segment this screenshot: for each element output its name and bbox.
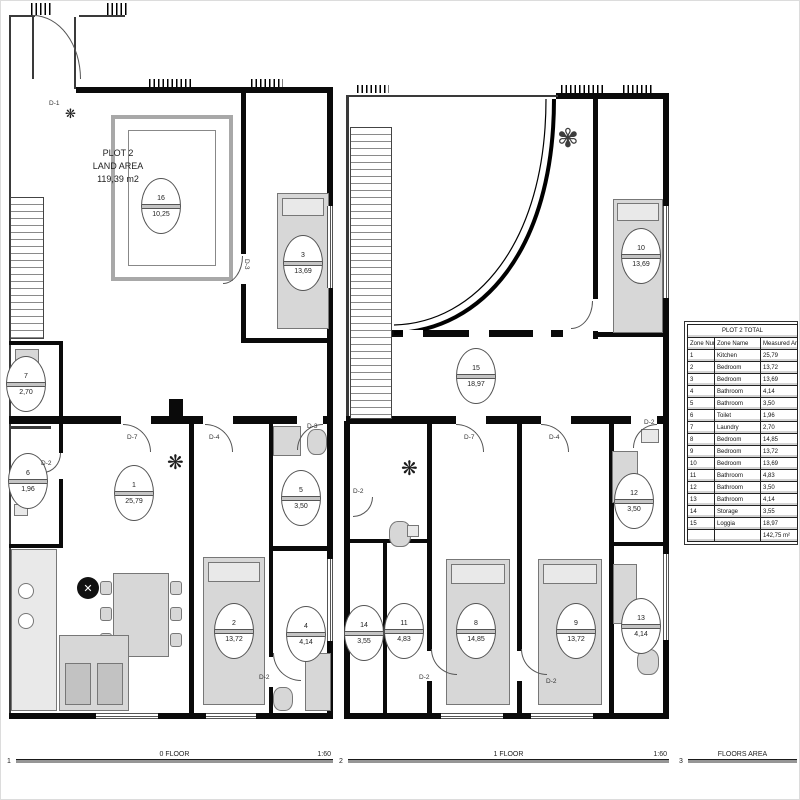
room-divider [345, 631, 383, 636]
cabinet [65, 663, 91, 705]
room-number: 11 [400, 620, 407, 627]
column [169, 399, 183, 416]
zones-table: PLOT 2 TOTAL Zone Number Zone Name Measu… [684, 321, 798, 545]
door-swing [571, 301, 593, 329]
door-label: D-2 [644, 420, 654, 427]
window [663, 206, 669, 298]
room-label-2: 213,72 [214, 603, 254, 659]
sink [18, 613, 34, 629]
room-number: 7 [24, 373, 28, 380]
room-label-12: 123,50 [614, 473, 654, 529]
pillow [208, 562, 260, 582]
room-area: 10,25 [152, 211, 170, 218]
room-area: 3,50 [294, 503, 308, 510]
col-zone-number: Zone Number [688, 338, 715, 350]
table-row: 13Bathroom4,14 [688, 494, 798, 506]
pillow [543, 564, 597, 584]
wall [346, 539, 428, 543]
room-area: 13,72 [225, 636, 243, 643]
wall [609, 542, 669, 546]
pillow [617, 203, 659, 221]
room-divider [7, 382, 45, 387]
room-label-7: 72,70 [6, 356, 46, 412]
wall [9, 426, 51, 429]
room-divider [622, 624, 660, 629]
window [663, 554, 669, 640]
room-label-5: 53,50 [281, 470, 321, 526]
wall [346, 95, 349, 425]
room-area: 25,79 [125, 498, 143, 505]
table-row: 11Bathroom4,83 [688, 470, 798, 482]
room-area: 2,70 [19, 389, 33, 396]
title-underline [16, 759, 333, 763]
room-label-10: 1013,69 [621, 228, 661, 284]
room-number: 9 [574, 620, 578, 627]
door-label: D-3 [307, 424, 317, 431]
table-row: 12Bathroom3,50 [688, 482, 798, 494]
room-divider [385, 629, 423, 634]
room-divider [557, 629, 595, 634]
room-area: 4,14 [299, 639, 313, 646]
wall [79, 15, 125, 17]
sheet-number: 1 [7, 758, 16, 765]
room-number: 13 [637, 615, 645, 622]
room-divider [215, 629, 253, 634]
table-header-row: Zone Number Zone Name Measured Area [688, 338, 798, 350]
room-area: 4,14 [634, 631, 648, 638]
room-number: 4 [304, 623, 308, 630]
room-label-1: 125,79 [114, 465, 154, 521]
stairs [10, 197, 44, 339]
room-number: 6 [26, 470, 30, 477]
sheet-number: 2 [339, 758, 348, 765]
room-label-4: 44,14 [286, 606, 326, 662]
window [206, 713, 256, 719]
dimension-ticks [149, 79, 193, 87]
room-label-16: 1610,25 [141, 178, 181, 234]
table-row: 8Bedroom14,85 [688, 434, 798, 446]
door-label: D-1 [49, 101, 59, 108]
room-label-8: 814,85 [456, 603, 496, 659]
wall [346, 416, 669, 424]
wall [346, 713, 669, 719]
table-row: 2Bedroom13,72 [688, 362, 798, 374]
table-row: 10Bedroom13,69 [688, 458, 798, 470]
wall [9, 544, 63, 548]
table-row: 7Laundry2,70 [688, 422, 798, 434]
room-area: 4,83 [397, 636, 411, 643]
table-title: PLOT 2 TOTAL [688, 325, 798, 338]
room-number: 1 [132, 482, 136, 489]
wall [344, 421, 350, 719]
sheet-scale: 1:60 [317, 751, 331, 758]
room-divider [287, 632, 325, 637]
table-row: 4Bathroom4,14 [688, 386, 798, 398]
sheet-title: FLOORS AREA [718, 751, 767, 758]
room-label-14: 143,55 [344, 605, 384, 661]
door-label: D-3 [243, 259, 250, 269]
chair [170, 607, 182, 621]
wall [241, 338, 333, 343]
door-label: D-2 [41, 461, 51, 468]
table-row: 1Kitchen25,79 [688, 350, 798, 362]
sheet-title: 0 FLOOR [159, 751, 189, 758]
room-area: 3,55 [357, 638, 371, 645]
room-number: 5 [299, 487, 303, 494]
door-label: D-4 [549, 435, 559, 442]
room-divider [615, 499, 653, 504]
wall [9, 416, 333, 424]
sheet-scale: 1:60 [653, 751, 667, 758]
dimension-ticks [107, 3, 127, 15]
window [327, 559, 333, 641]
door-label: D-4 [209, 435, 219, 442]
window [327, 206, 333, 288]
shower [273, 426, 301, 456]
room-label-15: 1518,97 [456, 348, 496, 404]
table-row: 6Toilet1,96 [688, 410, 798, 422]
dimension-ticks [251, 79, 283, 87]
footer-1-floor: 2 1 FLOOR 1:60 [339, 749, 669, 765]
room-area: 13,69 [632, 261, 650, 268]
window [96, 713, 158, 719]
room-number: 16 [157, 195, 165, 202]
room-label-3: 313,69 [283, 235, 323, 291]
floorplan-drawing: ❋ ❋ ✕ PLOT 2 LAND AREA 119,39 m2 [0, 0, 800, 800]
title-underline [688, 759, 797, 763]
chair [170, 633, 182, 647]
room-number: 8 [474, 620, 478, 627]
plant-icon: ❋ [167, 453, 184, 473]
room-label-9: 913,72 [556, 603, 596, 659]
col-zone-name: Zone Name [715, 338, 761, 350]
door-label: D-2 [353, 489, 363, 496]
wall [9, 713, 333, 719]
sheet-title: 1 FLOOR [493, 751, 523, 758]
title-underline [348, 759, 669, 763]
stairs [350, 127, 392, 419]
room-divider [457, 629, 495, 634]
room-divider [282, 496, 320, 501]
dimension-ticks [623, 85, 653, 93]
room-number: 2 [232, 620, 236, 627]
pillow [282, 198, 324, 216]
room-label-11: 114,83 [384, 603, 424, 659]
table-row: 9Bedroom13,72 [688, 446, 798, 458]
table-row: 15Loggia18,97 [688, 518, 798, 530]
plant-icon: ❋ [65, 107, 76, 120]
room-area: 13,72 [567, 636, 585, 643]
room-number: 15 [472, 365, 480, 372]
wall [189, 424, 194, 713]
chair [170, 581, 182, 595]
plant-icon: ❋ [401, 459, 418, 479]
dimension-ticks [357, 85, 389, 93]
toilet [273, 687, 293, 711]
room-area: 3,50 [627, 506, 641, 513]
col-measured-area: Measured Area [761, 338, 798, 350]
door-label: D-2 [546, 679, 556, 686]
sink [407, 525, 419, 537]
fan-icon: ✕ [77, 577, 99, 599]
wall [76, 87, 333, 93]
room-divider [142, 204, 180, 209]
kitchen-counter [11, 549, 57, 711]
room-divider [115, 491, 153, 496]
window [441, 713, 503, 719]
wall [349, 95, 558, 97]
door-swing [223, 256, 243, 284]
door-label: D-7 [127, 435, 137, 442]
table-row: 5Bathroom3,50 [688, 398, 798, 410]
chair [100, 607, 112, 621]
sheet-number: 3 [679, 758, 688, 765]
room-number: 14 [360, 622, 368, 629]
door-swing [521, 649, 547, 675]
table-row: 14Storage3,55 [688, 506, 798, 518]
room-area: 13,69 [294, 268, 312, 275]
door-swing [353, 497, 373, 517]
table-row: 3Bedroom13,69 [688, 374, 798, 386]
window [531, 713, 593, 719]
door-swing [431, 649, 457, 675]
room-divider [622, 254, 660, 259]
wall [241, 87, 246, 343]
room-divider [457, 374, 495, 379]
table-total-row: 142,75 m² [688, 530, 798, 542]
wall [269, 546, 333, 551]
pillow [451, 564, 505, 584]
door-swing [633, 424, 657, 448]
footer-0-floor: 1 0 FLOOR 1:60 [7, 749, 333, 765]
footer-floors-area: 3 FLOORS AREA [679, 749, 797, 765]
total-area: 142,75 m² [761, 530, 798, 542]
room-number: 3 [301, 252, 305, 259]
room-divider [9, 479, 47, 484]
wall [9, 341, 63, 345]
sink [18, 583, 34, 599]
rosette-icon: ✾ [557, 125, 579, 151]
dimension-ticks [561, 85, 605, 93]
door-label: D-7 [464, 435, 474, 442]
room-area: 14,85 [467, 636, 485, 643]
room-number: 12 [630, 490, 638, 497]
zones-table-body: 1Kitchen25,792Bedroom13,723Bedroom13,694… [688, 350, 798, 530]
room-area: 18,97 [467, 381, 485, 388]
dimension-ticks [31, 3, 51, 15]
chair [100, 581, 112, 595]
wall [556, 93, 669, 99]
room-divider [284, 261, 322, 266]
room-label-13: 134,14 [621, 598, 661, 654]
room-area: 1,96 [21, 486, 35, 493]
door-label: D-2 [259, 675, 269, 682]
room-number: 10 [637, 245, 645, 252]
wall [59, 341, 63, 546]
door-label: D-2 [419, 675, 429, 682]
cabinet [97, 663, 123, 705]
